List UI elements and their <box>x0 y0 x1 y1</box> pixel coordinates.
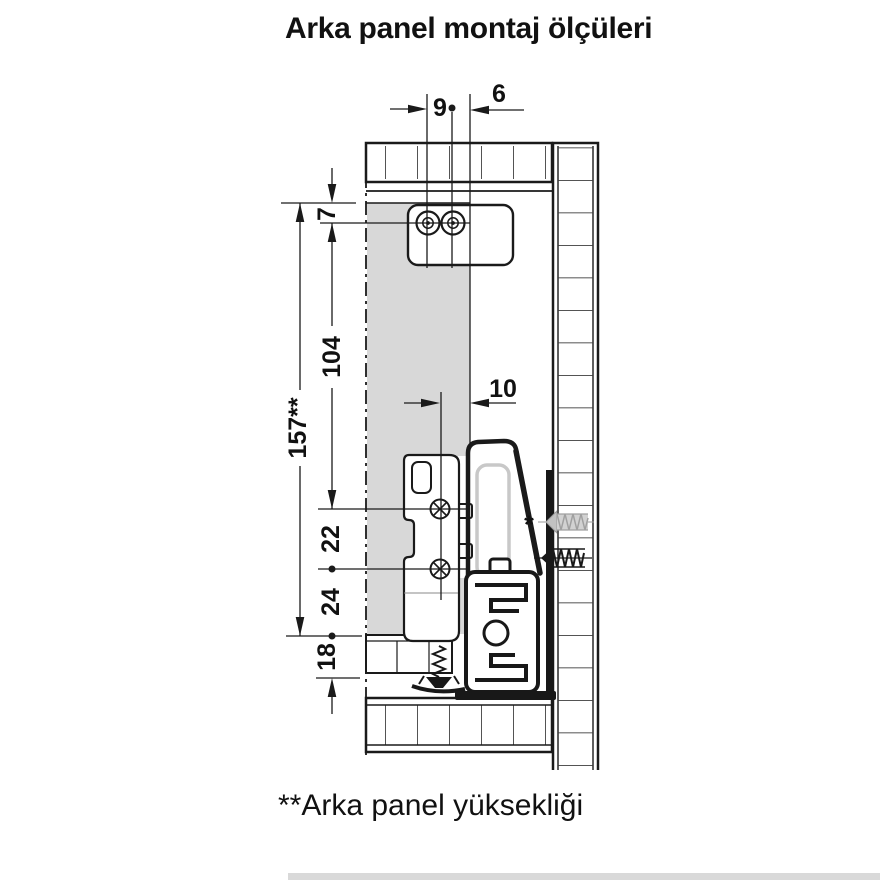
dim-22: 22 <box>317 525 345 553</box>
footnote: **Arka panel yüksekliği <box>278 789 583 823</box>
cabinet-top-board <box>366 143 552 191</box>
cabinet-side-panel <box>553 143 598 770</box>
horizontal-scrollbar[interactable] <box>288 873 880 880</box>
dim-6: 6 <box>492 80 506 108</box>
asterisk-marker: * <box>524 511 534 539</box>
dim-157: 157** <box>284 397 312 458</box>
dim-10: 10 <box>489 375 517 403</box>
cabinet-bottom-board <box>366 698 552 752</box>
dim-18: 18 <box>313 643 341 671</box>
dim-104: 104 <box>318 336 346 378</box>
page: Arka panel montaj ölçüleri <box>0 0 880 880</box>
mounting-diagram: * <box>0 0 880 880</box>
rear-fixing-bracket <box>408 205 513 265</box>
dim-9: 9 <box>433 94 447 122</box>
dim-24: 24 <box>317 588 345 616</box>
dim-7: 7 <box>313 207 341 221</box>
